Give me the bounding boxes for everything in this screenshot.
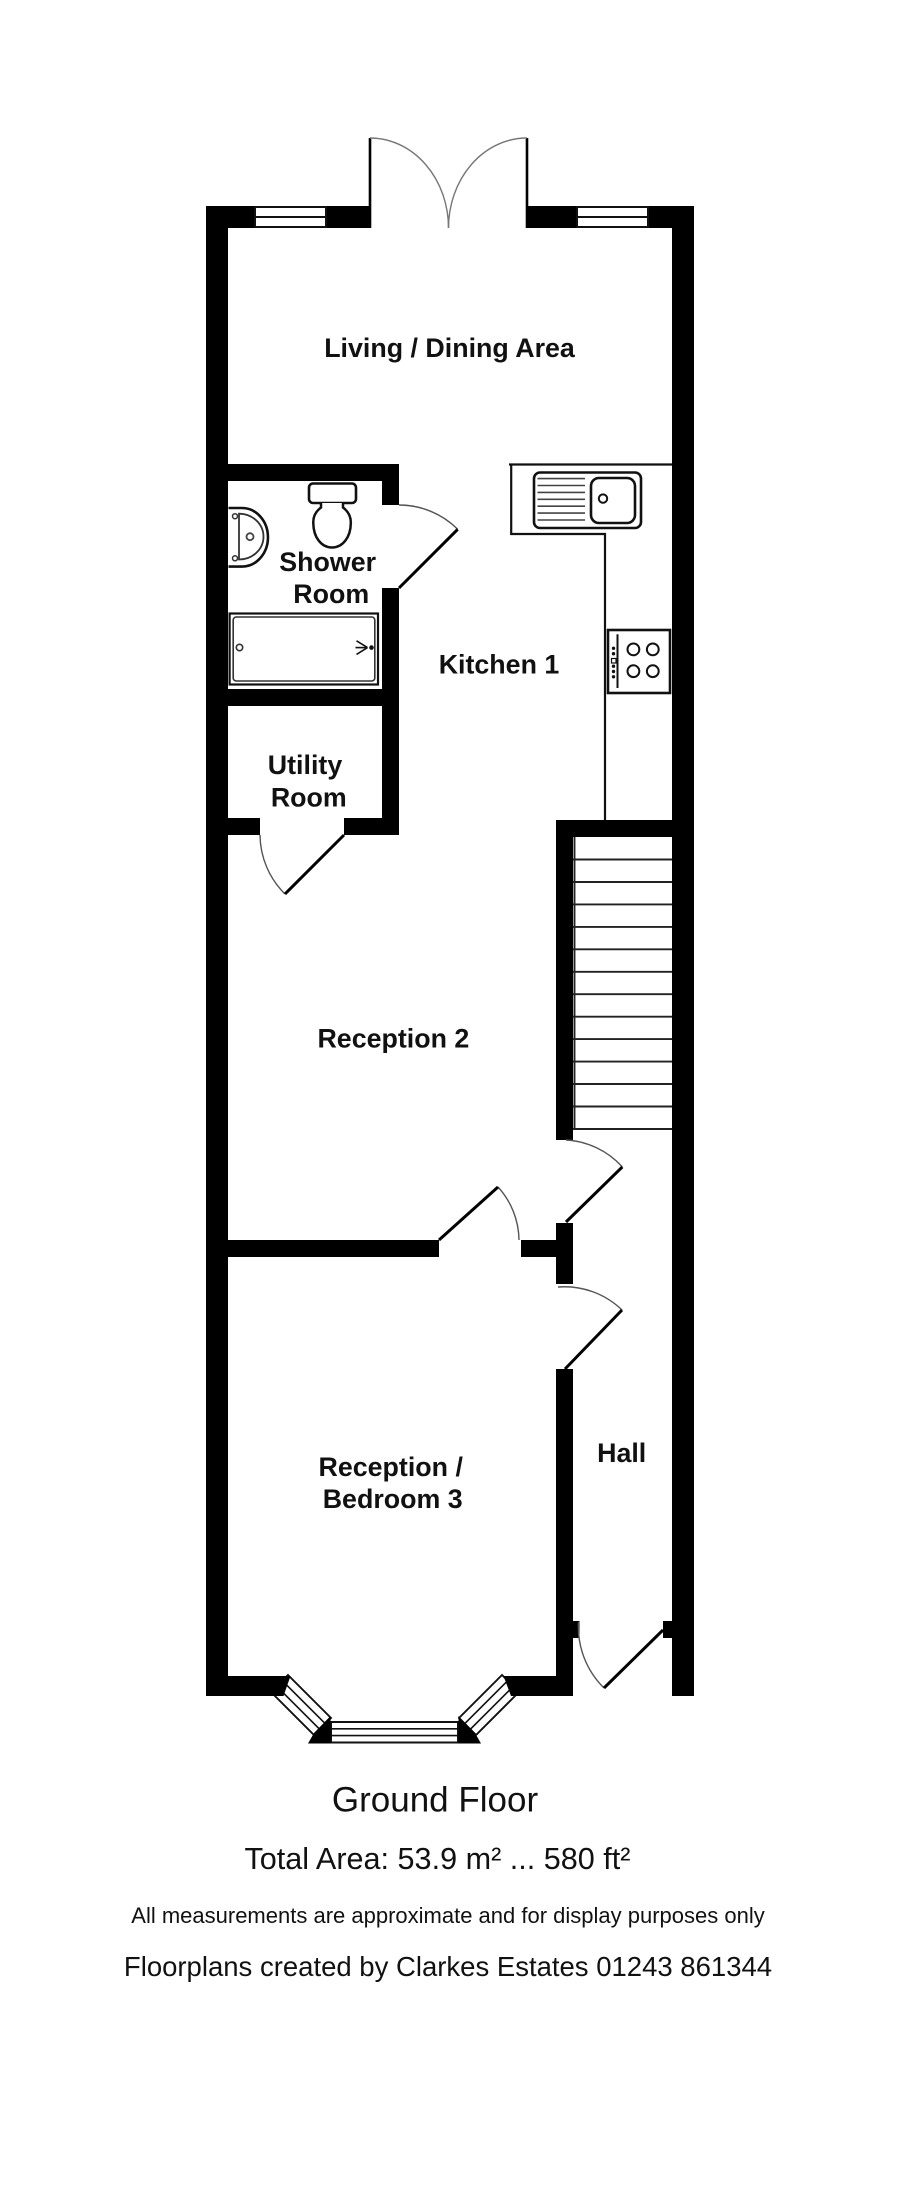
svg-text:Hall: Hall (597, 1438, 646, 1468)
svg-text:Bedroom 3: Bedroom 3 (323, 1484, 463, 1514)
svg-text:Ground Floor: Ground Floor (332, 1781, 539, 1820)
svg-text:Reception 2: Reception 2 (317, 1024, 469, 1054)
svg-text:Room: Room (293, 579, 369, 609)
svg-text:Kitchen 1: Kitchen 1 (439, 650, 560, 680)
svg-text:Room: Room (271, 783, 347, 813)
svg-text:Floorplans created by Clarkes: Floorplans created by Clarkes Estates 01… (124, 1951, 772, 1982)
svg-text:Shower: Shower (279, 547, 376, 577)
svg-text:Reception /: Reception / (318, 1452, 463, 1482)
svg-text:Total Area: 53.9 m² ... 580 ft: Total Area: 53.9 m² ... 580 ft² (244, 1842, 630, 1876)
svg-text:Utility: Utility (268, 750, 343, 780)
svg-text:All measurements are approxima: All measurements are approximate and for… (131, 1903, 764, 1928)
svg-text:Living / Dining Area: Living / Dining Area (324, 333, 576, 363)
